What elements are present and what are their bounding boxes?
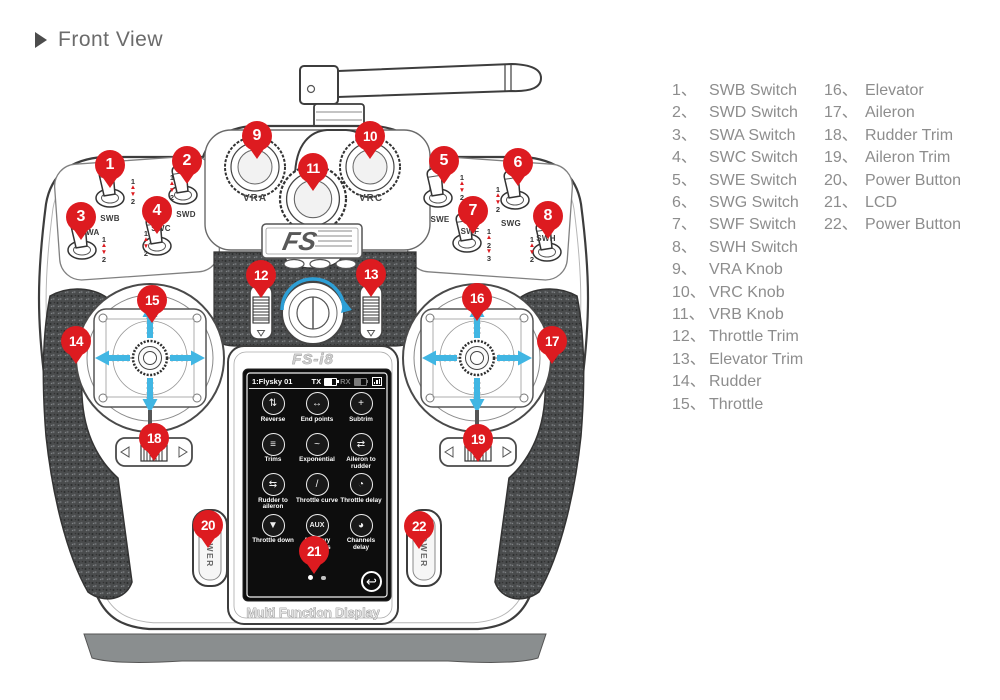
lcd-menu-aileron-to-rudder: ⇄Aileron to rudder — [339, 433, 383, 472]
vrc-label: VRC — [359, 193, 383, 204]
callout-pin-9: 9 — [242, 121, 272, 151]
lcd-menu-channels-delay: ◕Channels delay — [339, 514, 383, 553]
page-dot-icon — [308, 575, 313, 580]
lcd-menu-trims: ≡Trims — [251, 433, 295, 472]
legend-item-label: Throttle Trim — [709, 328, 799, 345]
lcd-menu-label: Exponential — [299, 457, 335, 471]
swe-label: SWE — [430, 215, 449, 224]
callout-pin-7: 7 — [458, 196, 488, 226]
legend-item-number: 18、 — [824, 125, 865, 147]
legend-item-number: 21、 — [824, 192, 865, 214]
lcd-menu-label: Channels delay — [339, 538, 383, 552]
lcd-menu-throttle-down-icon: ▼ — [262, 514, 285, 537]
callout-pin-13: 13 — [356, 259, 386, 289]
legend-item-9: 9、VRA Knob — [672, 259, 822, 281]
lcd-tx-label: TX — [311, 377, 321, 386]
brand-logo-text: FS — [280, 226, 320, 256]
callout-pin-4: 4 — [142, 196, 172, 226]
legend-item-label: Aileron Trim — [865, 149, 950, 166]
legend-item-number: 5、 — [672, 170, 709, 192]
switch-pos-indicator-swd: 1▲▼2 — [166, 174, 178, 201]
legend-item-number: 22、 — [824, 214, 865, 236]
legend-item-label: SWB Switch — [709, 82, 797, 99]
legend: 1、SWB Switch2、SWD Switch3、SWA Switch4、SW… — [672, 80, 1000, 416]
legend-column-2: 16、Elevator17、Aileron18、Rudder Trim19、Ai… — [824, 80, 1000, 416]
lcd-model-name: 1:Flysky 01 — [252, 377, 309, 386]
legend-item-number: 1、 — [672, 80, 709, 102]
vent-ovals — [284, 260, 356, 269]
switch-pos-indicator-swb: 1▲▼2 — [127, 178, 139, 205]
back-icon: ↩ — [361, 571, 382, 592]
lcd-menu-label: Reverse — [261, 417, 286, 431]
legend-item-19: 19、Aileron Trim — [824, 147, 1000, 169]
legend-item-label: SWD Switch — [709, 104, 798, 121]
callout-pin-22: 22 — [404, 511, 434, 541]
legend-item-18: 18、Rudder Trim — [824, 125, 1000, 147]
legend-item-number: 20、 — [824, 170, 865, 192]
legend-item-number: 11、 — [672, 304, 709, 326]
callout-pin-14: 14 — [61, 326, 91, 356]
lcd-menu-throttle-curve: /Throttle curve — [295, 473, 339, 512]
callout-pin-19: 19 — [463, 424, 493, 454]
lcd-menu-label: End points — [301, 417, 334, 431]
legend-item-label: Throttle — [709, 396, 763, 413]
legend-item-21: 21、LCD — [824, 192, 1000, 214]
callout-pin-12: 12 — [246, 260, 276, 290]
legend-item-label: SWC Switch — [709, 149, 798, 166]
lcd-menu-auxiliary-channels-icon: AUX — [306, 514, 329, 537]
legend-item-number: 19、 — [824, 147, 865, 169]
bottom-base — [84, 634, 546, 662]
legend-column-1: 1、SWB Switch2、SWD Switch3、SWA Switch4、SW… — [672, 80, 822, 416]
switch-pos-indicator-swh: 1▲▼2 — [526, 236, 538, 263]
lcd-menu-grid: ⇅Reverse↔End points+Subtrim≡Trims~Expone… — [249, 389, 385, 552]
lcd-menu-rudder-to-aileron: ⇆Rudder to aileron — [251, 473, 295, 512]
legend-item-number: 17、 — [824, 102, 865, 124]
lcd-menu-reverse: ⇅Reverse — [251, 392, 295, 431]
legend-item-label: Power Button — [865, 172, 961, 189]
lcd-menu-label: Subtrim — [349, 417, 373, 431]
lcd-menu-trims-icon: ≡ — [262, 433, 285, 456]
legend-item-label: Power Button — [865, 216, 961, 233]
legend-item-number: 14、 — [672, 371, 709, 393]
switch-pos-indicator-swg: 1▲▼2 — [492, 186, 504, 213]
legend-item-1: 1、SWB Switch — [672, 80, 822, 102]
lcd-menu-aileron-to-rudder-icon: ⇄ — [350, 433, 373, 456]
legend-item-label: Aileron — [865, 104, 915, 121]
lcd-menu-label: Throttle delay — [340, 498, 381, 512]
legend-item-number: 13、 — [672, 349, 709, 371]
lcd-menu-throttle-delay-icon: ◔ — [350, 473, 373, 496]
callout-pin-2: 2 — [172, 146, 202, 176]
lcd-status-bar: 1:Flysky 01 TX RX — [249, 376, 385, 389]
lcd-menu-subtrim: +Subtrim — [339, 392, 383, 431]
lcd-menu-exponential: ~Exponential — [295, 433, 339, 472]
callout-pin-21: 21 — [299, 536, 329, 566]
legend-item-label: SWF Switch — [709, 216, 796, 233]
legend-item-7: 7、SWF Switch — [672, 214, 822, 236]
callout-pin-8: 8 — [533, 201, 563, 231]
legend-item-label: VRA Knob — [709, 261, 783, 278]
legend-item-label: SWA Switch — [709, 127, 796, 144]
legend-item-label: Elevator Trim — [709, 351, 803, 368]
page-dot-icon — [321, 576, 326, 581]
legend-item-number: 12、 — [672, 326, 709, 348]
lcd-menu-throttle-down: ▼Throttle down — [251, 514, 295, 553]
legend-item-15: 15、Throttle — [672, 394, 822, 416]
legend-item-number: 8、 — [672, 237, 709, 259]
callout-pin-18: 18 — [139, 423, 169, 453]
callout-pin-1: 1 — [95, 150, 125, 180]
lcd-menu-end-points-icon: ↔ — [306, 392, 329, 415]
legend-item-number: 16、 — [824, 80, 865, 102]
lcd-menu-label: Aileron to rudder — [339, 457, 383, 471]
lcd-menu-throttle-curve-icon: / — [306, 473, 329, 496]
lcd-menu-label: Throttle down — [252, 538, 294, 552]
switch-pos-indicator-swf: 1▲2▼3 — [483, 228, 495, 262]
callout-pin-5: 5 — [429, 146, 459, 176]
legend-item-13: 13、Elevator Trim — [672, 349, 822, 371]
legend-item-label: VRB Knob — [709, 306, 784, 323]
tx-battery-icon — [324, 378, 337, 386]
lcd-menu-rudder-to-aileron-icon: ⇆ — [262, 473, 285, 496]
callout-pin-3: 3 — [66, 202, 96, 232]
callout-pin-16: 16 — [462, 283, 492, 313]
legend-item-number: 9、 — [672, 259, 709, 281]
legend-item-20: 20、Power Button — [824, 170, 1000, 192]
legend-item-label: Rudder Trim — [865, 127, 953, 144]
lcd-menu-subtrim-icon: + — [350, 392, 373, 415]
legend-item-label: VRC Knob — [709, 284, 785, 301]
legend-item-label: SWE Switch — [709, 172, 797, 189]
brand-plate: FS — [262, 224, 362, 258]
lcd-menu-channels-delay-icon: ◕ — [350, 514, 373, 537]
legend-item-label: Rudder — [709, 373, 761, 390]
legend-item-number: 10、 — [672, 282, 709, 304]
legend-item-16: 16、Elevator — [824, 80, 1000, 102]
callout-pin-20: 20 — [193, 510, 223, 540]
legend-item-10: 10、VRC Knob — [672, 282, 822, 304]
lcd-rx-label: RX — [340, 377, 350, 386]
legend-item-5: 5、SWE Switch — [672, 170, 822, 192]
legend-item-number: 15、 — [672, 394, 709, 416]
switch-pos-indicator-swa: 1▲▼2 — [98, 236, 110, 263]
legend-item-4: 4、SWC Switch — [672, 147, 822, 169]
lcd-menu-label: Throttle curve — [296, 498, 338, 512]
callout-pin-11: 11 — [298, 153, 328, 183]
legend-item-number: 7、 — [672, 214, 709, 236]
legend-item-8: 8、SWH Switch — [672, 237, 822, 259]
lcd-menu-end-points: ↔End points — [295, 392, 339, 431]
legend-item-label: SWH Switch — [709, 239, 798, 256]
legend-item-12: 12、Throttle Trim — [672, 326, 822, 348]
callout-pin-17: 17 — [537, 326, 567, 356]
callout-pin-6: 6 — [503, 148, 533, 178]
swg-label: SWG — [501, 219, 521, 228]
front-view-page: Front View — [0, 0, 1000, 700]
rx-battery-icon — [354, 378, 367, 386]
swd-label: SWD — [176, 210, 196, 219]
switch-pos-indicator-swc: 1▲▼2 — [140, 230, 152, 257]
callout-pin-10: 10 — [355, 121, 385, 151]
lcd-menu-throttle-delay: ◔Throttle delay — [339, 473, 383, 512]
signal-strength-icon — [372, 377, 383, 386]
legend-item-number: 2、 — [672, 102, 709, 124]
model-name-text: FS-i8 — [292, 351, 334, 368]
legend-item-number: 6、 — [672, 192, 709, 214]
display-caption-text: Multi Function Display — [246, 606, 379, 620]
legend-item-2: 2、SWD Switch — [672, 102, 822, 124]
callout-pin-15: 15 — [137, 285, 167, 315]
legend-item-22: 22、Power Button — [824, 214, 1000, 236]
lcd-menu-reverse-icon: ⇅ — [262, 392, 285, 415]
legend-item-14: 14、Rudder — [672, 371, 822, 393]
legend-item-number: 4、 — [672, 147, 709, 169]
vra-label: VRA — [243, 193, 267, 204]
lcd-menu-label: Trims — [265, 457, 282, 471]
legend-item-11: 11、VRB Knob — [672, 304, 822, 326]
legend-item-6: 6、SWG Switch — [672, 192, 822, 214]
legend-item-label: Elevator — [865, 82, 924, 99]
lcd-menu-label: Rudder to aileron — [251, 498, 295, 512]
legend-item-label: LCD — [865, 194, 897, 211]
legend-item-3: 3、SWA Switch — [672, 125, 822, 147]
lcd-menu-exponential-icon: ~ — [306, 433, 329, 456]
antenna — [300, 64, 541, 130]
swb-label: SWB — [100, 214, 120, 223]
legend-item-17: 17、Aileron — [824, 102, 1000, 124]
legend-item-label: SWG Switch — [709, 194, 799, 211]
legend-item-number: 3、 — [672, 125, 709, 147]
